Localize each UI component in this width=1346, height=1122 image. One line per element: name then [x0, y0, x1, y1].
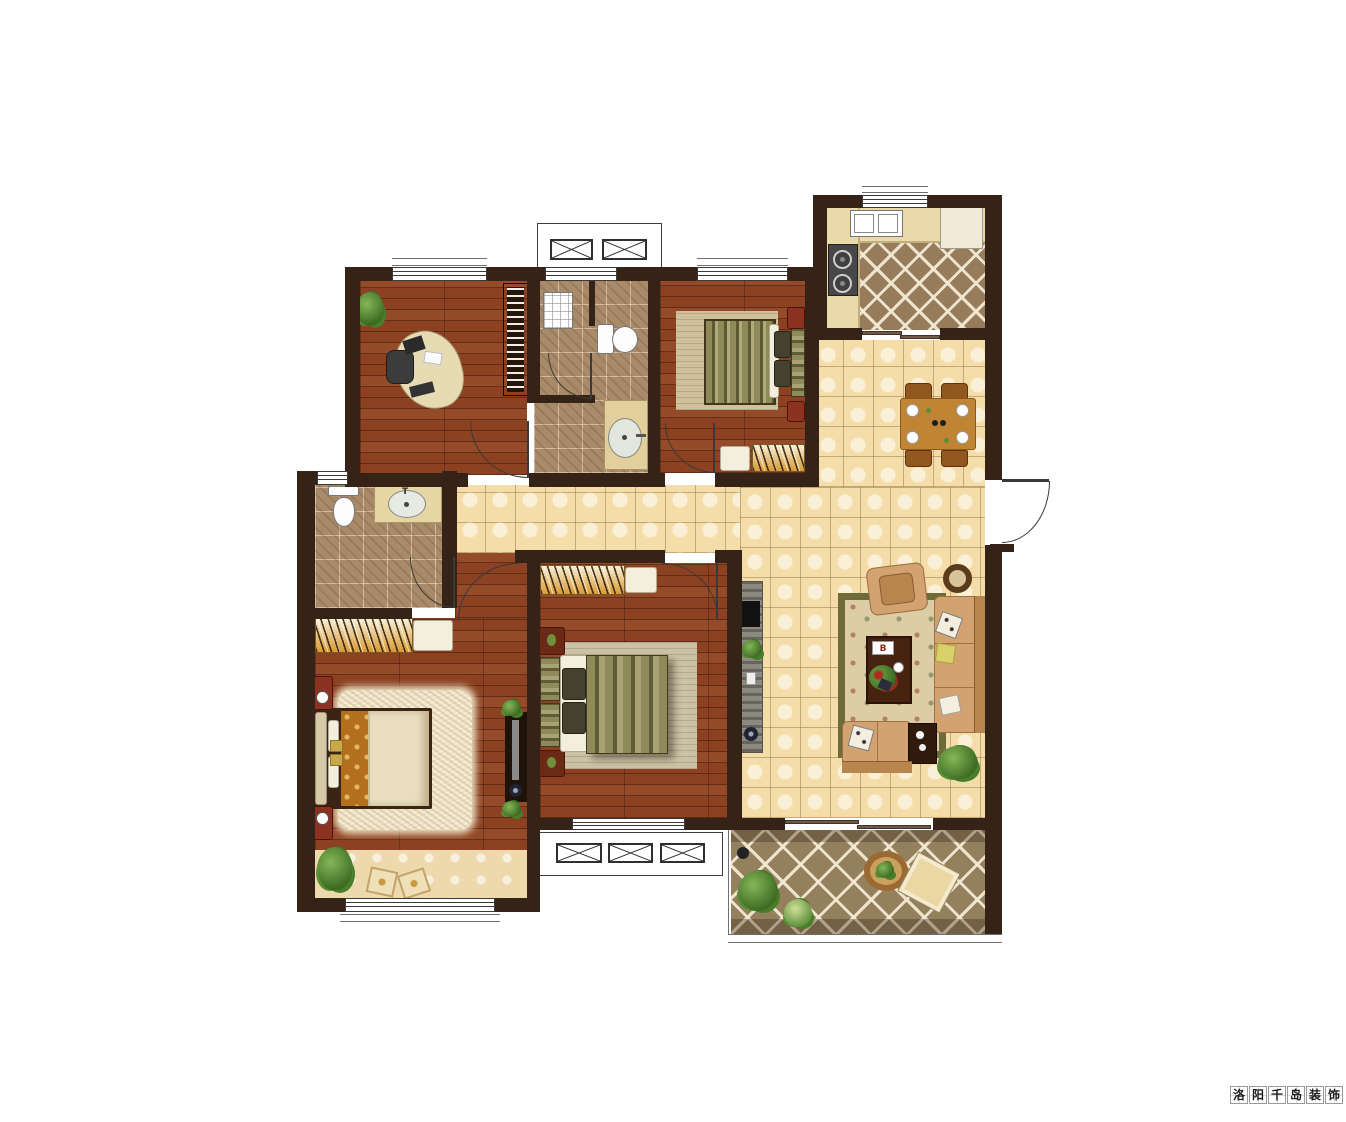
window-sill	[697, 258, 788, 266]
wall	[715, 473, 805, 487]
wardrobe-cushion	[720, 446, 750, 471]
wardrobe-cushion	[413, 620, 453, 651]
watermark: 洛 阳 千 岛 装 饰	[1230, 1086, 1343, 1104]
baywindow-plant-icon	[317, 847, 353, 891]
wall	[527, 281, 540, 403]
wardrobe	[540, 565, 625, 595]
wardrobe	[752, 444, 805, 472]
watermark-char: 洛	[1230, 1086, 1248, 1104]
toilet-bowl-icon	[612, 326, 638, 353]
wall	[985, 195, 1002, 480]
magazine-label: B	[880, 644, 887, 654]
bedroom-center-door-leaf	[716, 563, 718, 619]
speaker-icon	[744, 727, 758, 741]
bedroom-secondary-window	[697, 267, 788, 281]
wall	[727, 550, 742, 830]
round-side-table	[943, 564, 972, 593]
tv-plant-icon	[742, 640, 762, 658]
bathroom-main-window	[545, 267, 617, 281]
master-tv-icon	[512, 720, 519, 780]
bed-cushion	[330, 754, 343, 766]
window-x-icon	[660, 843, 705, 863]
master-bedroom-window	[345, 898, 495, 912]
office-chair	[386, 350, 414, 384]
watermark-char: 阳	[1249, 1086, 1267, 1104]
plate-icon	[906, 431, 919, 444]
cup-icon	[919, 744, 926, 751]
watermark-char: 千	[1268, 1086, 1286, 1104]
table-plant-icon	[876, 862, 894, 878]
window-x-icon	[556, 843, 602, 863]
window-x-icon	[602, 239, 647, 260]
window-sill	[862, 186, 928, 193]
study-plant-icon	[356, 292, 384, 326]
wall	[617, 267, 697, 281]
drain-icon	[622, 435, 627, 440]
bed-headboard-roll	[540, 657, 560, 701]
entry-threshold	[990, 544, 1014, 552]
magazine-icon: B	[872, 641, 894, 655]
wall	[985, 818, 1002, 934]
plate-icon	[956, 431, 969, 444]
floor-plan: B T	[0, 0, 1346, 1122]
sink-basin	[854, 214, 874, 233]
burner-icon	[833, 274, 852, 293]
balcony-railing-side	[728, 830, 731, 934]
tv-icon	[742, 601, 760, 627]
wardrobe	[315, 618, 413, 653]
bed-blanket	[586, 655, 668, 754]
kitchen-sliding-door	[862, 331, 902, 335]
sink-basin	[878, 214, 898, 233]
wall	[740, 818, 785, 830]
bookshelf	[503, 283, 528, 396]
plate-icon	[956, 404, 969, 417]
shower-tray	[543, 292, 573, 329]
bedroom-center-window	[572, 818, 685, 830]
master-bathroom-door-leaf	[453, 557, 455, 608]
bed-cushion	[330, 740, 343, 752]
plate-icon	[906, 404, 919, 417]
watermark-char: 岛	[1287, 1086, 1305, 1104]
decor-vase-icon	[746, 672, 756, 685]
wardrobe-cushion	[625, 567, 657, 593]
faucet-icon	[636, 434, 646, 437]
sofa-pillow	[935, 643, 956, 664]
bedroom-secondary-door-leaf	[713, 423, 715, 473]
window-x-icon	[608, 843, 653, 863]
bed-headboard	[315, 712, 327, 805]
wall	[985, 545, 1002, 818]
toilet-tank-icon	[328, 486, 359, 496]
faucet-label: T	[402, 487, 408, 497]
bed-blanket	[368, 711, 429, 806]
dining-chair	[905, 450, 932, 467]
nightstand	[787, 401, 805, 422]
teapot-icon	[932, 420, 938, 426]
bed-pillow	[562, 668, 586, 700]
bed-pillow	[774, 331, 791, 358]
wall	[487, 267, 545, 281]
bed-pillow	[774, 360, 791, 387]
burner-icon	[833, 250, 852, 269]
window-sill	[392, 258, 487, 266]
speaker-icon	[509, 784, 522, 797]
drain-dot-icon	[737, 847, 749, 859]
nightstand-decor-icon	[547, 757, 556, 768]
bed-pillow	[562, 702, 586, 734]
entry-door-arc	[1002, 481, 1050, 543]
papers-icon	[423, 351, 442, 365]
divider-plant-icon	[502, 700, 521, 716]
bed-headboard	[791, 325, 805, 397]
kitchen-window	[862, 195, 928, 208]
dining-chair	[941, 450, 968, 467]
toilet-bowl-icon	[333, 497, 355, 527]
master-bathroom-window	[317, 471, 348, 485]
garnish-icon	[944, 438, 949, 443]
wall	[529, 473, 665, 487]
study-window	[392, 267, 487, 281]
bed-canopy	[704, 319, 776, 405]
wall	[648, 281, 660, 473]
living-plant-icon	[938, 746, 978, 780]
balcony-shrub-icon	[784, 899, 812, 927]
watermark-char: 饰	[1325, 1086, 1343, 1104]
wall-stub	[589, 281, 595, 326]
balcony-shrub-icon	[738, 871, 778, 911]
balcony-railing	[728, 934, 1002, 943]
kitchen-sliding-door	[900, 335, 940, 339]
wall	[685, 818, 727, 830]
bed-headboard-roll	[540, 703, 560, 747]
window-sill	[340, 914, 500, 922]
balcony-sliding-door	[857, 825, 931, 829]
watermark-char: 装	[1306, 1086, 1324, 1104]
wall	[495, 898, 540, 912]
nightstand-decor-icon	[547, 634, 556, 646]
wall	[813, 195, 827, 340]
bathroom-main-door-leaf	[590, 353, 592, 399]
refrigerator	[940, 206, 983, 249]
window-x-icon	[550, 239, 593, 260]
armchair-cushion	[878, 572, 915, 606]
garnish-icon	[926, 408, 931, 413]
nightstand	[787, 307, 805, 329]
balcony-sliding-door	[785, 820, 859, 824]
teapot-icon	[940, 420, 946, 426]
drain-icon	[404, 502, 409, 507]
wall	[345, 267, 360, 487]
lamp-icon	[316, 691, 329, 704]
cup-icon	[916, 731, 924, 739]
loveseat-backrest	[842, 761, 912, 773]
baywindow-pillow	[366, 866, 399, 897]
wall	[297, 471, 315, 912]
divider-plant-icon	[502, 801, 521, 817]
wall	[527, 550, 540, 898]
lamp-icon	[316, 812, 329, 825]
study-door-leaf	[527, 421, 529, 478]
bed-quilt-runner	[341, 711, 368, 806]
